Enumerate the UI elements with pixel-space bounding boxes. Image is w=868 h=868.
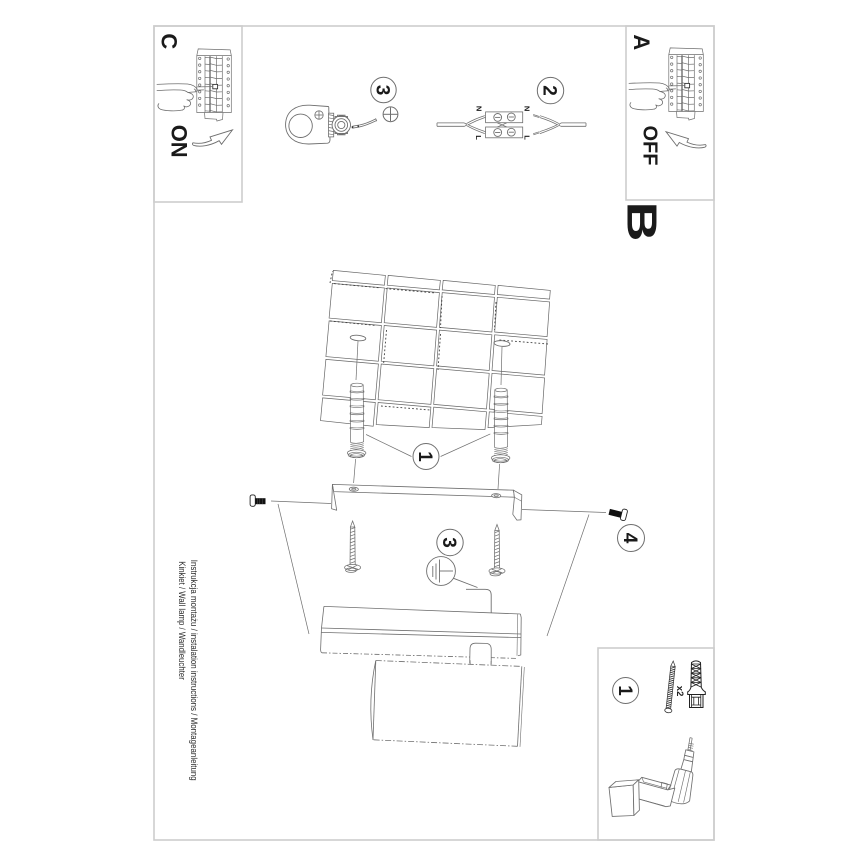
svg-text:3: 3 [372,85,393,96]
svg-text:N: N [523,106,532,111]
svg-text:Instrukcja montażu / instalati: Instrukcja montażu / instalation instruc… [189,560,199,781]
svg-text:Kinkiet / Wall lamp / Wandleuc: Kinkiet / Wall lamp / Wandleuchter [177,561,187,680]
svg-text:C: C [156,33,181,49]
svg-text:B: B [619,202,666,242]
svg-text:3: 3 [438,537,459,548]
svg-text:A: A [629,34,654,50]
svg-text:N: N [474,106,483,111]
svg-text:OFF: OFF [639,126,661,166]
svg-text:L: L [474,135,483,140]
svg-text:ON: ON [166,125,191,158]
svg-text:2: 2 [539,85,560,96]
svg-text:L: L [523,135,532,140]
svg-text:4: 4 [619,533,640,544]
svg-text:1: 1 [414,451,435,462]
svg-text:x2: x2 [674,686,685,697]
svg-text:1: 1 [614,685,635,696]
